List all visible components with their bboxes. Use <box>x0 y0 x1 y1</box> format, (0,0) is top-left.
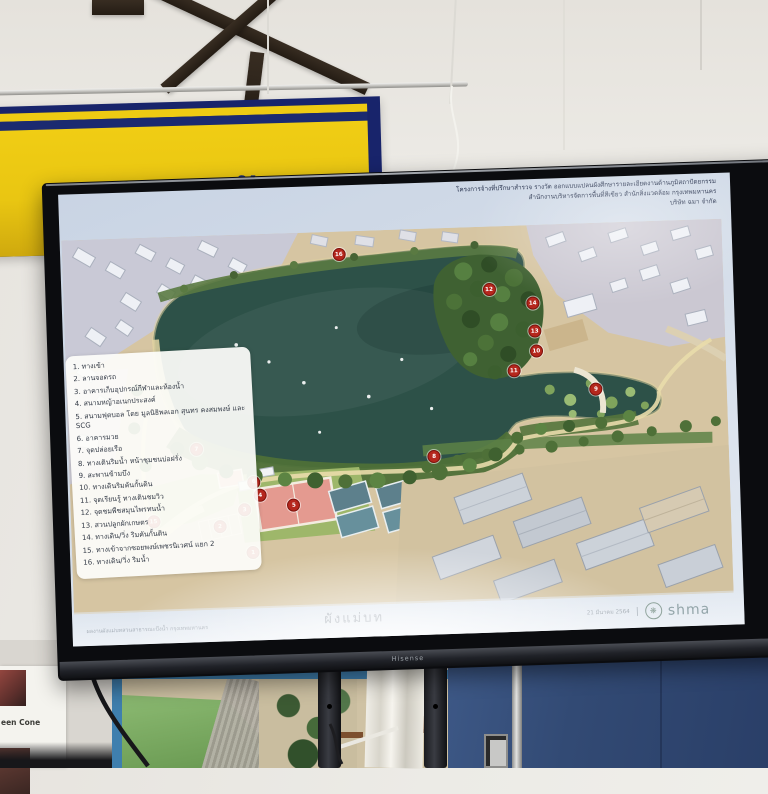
legend-number: 9. <box>78 472 85 480</box>
screen-glare <box>137 535 678 647</box>
ceiling-beam-top <box>92 0 144 15</box>
legend-number: 13. <box>81 521 93 530</box>
map-marker: 5 <box>287 498 300 511</box>
tv-brand-logo: Hisense <box>392 654 425 663</box>
map-marker: 8 <box>427 450 440 463</box>
legend-number: 11. <box>80 496 92 505</box>
legend-number: 5. <box>75 413 82 421</box>
marker-number: 4 <box>258 492 262 498</box>
board-seam <box>660 650 662 768</box>
marker-number: 11 <box>510 368 518 374</box>
tv-screen: โครงการจ้างที่ปรึกษาสำรวจ รางวัด ออกแบบแ… <box>58 173 745 647</box>
marker-number: 13 <box>531 328 539 334</box>
map-marker: 13 <box>528 324 541 337</box>
legend-number: 12. <box>80 509 92 518</box>
wall-seam <box>700 0 702 70</box>
map-marker: 9 <box>589 382 602 395</box>
tv-stand-leg <box>424 654 447 768</box>
hanging-string <box>563 0 565 150</box>
hanging-string <box>267 0 269 94</box>
legend-label: ลานจอดรถ <box>82 373 116 383</box>
marker-number: 5 <box>292 502 296 508</box>
map-marker: 11 <box>507 364 520 377</box>
metal-bracket <box>484 734 508 768</box>
screen-glare <box>469 173 745 312</box>
map-marker: 16 <box>332 248 345 261</box>
legend-label: สวนปลูกผักเกษตร <box>94 518 148 529</box>
legend-number: 8. <box>78 459 85 467</box>
legend-label: สนามหญ้าอเนกประสงค์ <box>83 396 155 408</box>
legend-label: ทางเดินริมคันกั้นดิน <box>92 480 152 491</box>
legend-number: 15. <box>82 546 94 555</box>
marker-number: 9 <box>594 386 598 392</box>
navy-backdrop-board <box>448 650 768 768</box>
legend-label: ทางเข้า <box>81 361 104 370</box>
legend-label: สะพานข้ามบึง <box>87 469 130 479</box>
legend-label: อาคารเก็บอุปกรณ์กีฬาและห้องน้ำ <box>83 382 184 395</box>
legend-number: 1. <box>72 363 79 371</box>
legend-label: จุดปล่อยเรือ <box>86 445 122 455</box>
legend-number: 4. <box>75 400 82 408</box>
legend-number: 10. <box>79 484 91 493</box>
legend-label: อาคารมวย <box>85 432 119 442</box>
legend-label: จุดชมพืชสมุนไพรทนน้ำ <box>94 505 165 517</box>
map-marker: 10 <box>530 344 543 357</box>
floor-shadow <box>0 742 112 768</box>
marker-number: 8 <box>432 453 436 459</box>
legend-number: 3. <box>74 388 81 396</box>
legend-number: 2. <box>73 375 80 383</box>
legend-number: 7. <box>77 447 84 455</box>
legend-card: 1. ทางเข้า2. ลานจอดรถ3. อาคารเก็บอุปกรณ์… <box>65 347 262 580</box>
legend-number: 6. <box>76 434 83 442</box>
legend-label: ทางเดิน/วิ่ง ริมคันกั้นดิน <box>95 529 167 541</box>
tv-monitor: โครงการจ้างที่ปรึกษาสำรวจ รางวัด ออกแบบแ… <box>42 157 768 681</box>
legend-number: 16. <box>83 558 95 567</box>
marker-number: 16 <box>335 251 343 257</box>
legend-label: จุดเรียนรู้ ทางเดินชมวิว <box>93 492 164 504</box>
legend-number: 14. <box>82 533 94 542</box>
metal-pole <box>512 650 522 768</box>
legend-label: ทางเดินริมน้ำ หน้าชุมชนบ่อฝรั่ง <box>87 454 182 467</box>
marker-number: 10 <box>532 348 540 354</box>
